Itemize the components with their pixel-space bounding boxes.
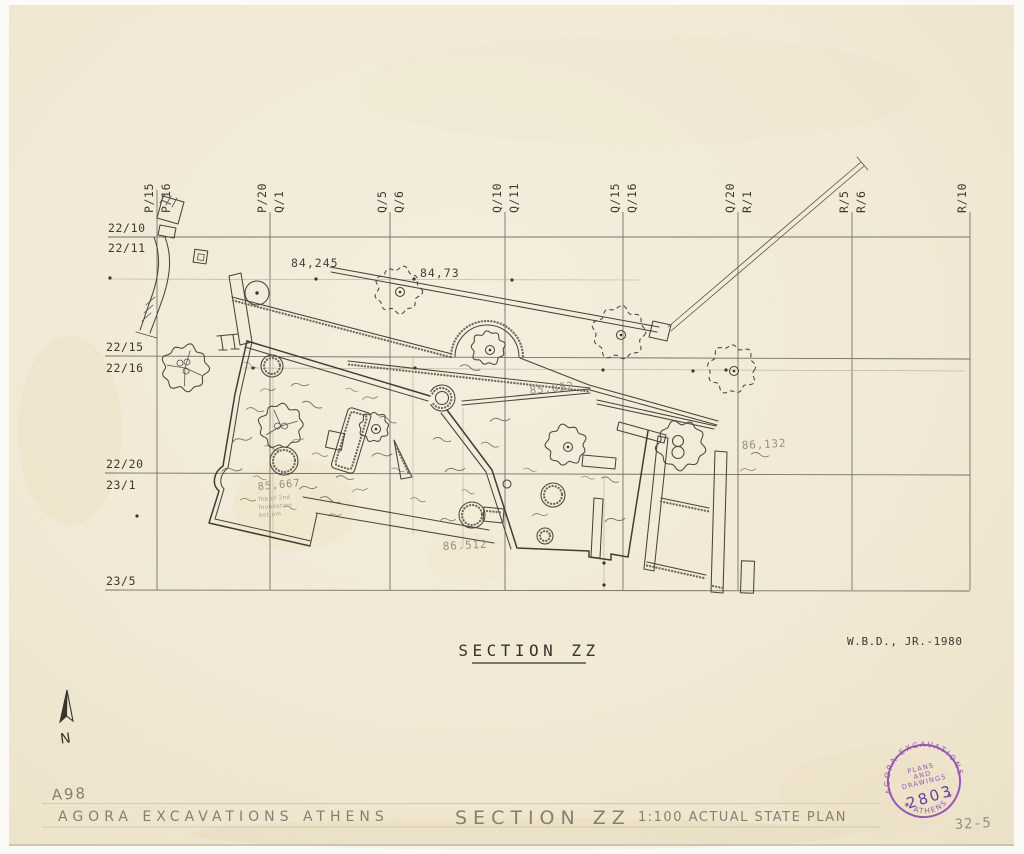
- grid-column-label: Q/20: [723, 183, 737, 213]
- tree-trunk-dot: [567, 446, 570, 449]
- grid-row-label: 22/16: [106, 361, 144, 375]
- north-label: N: [59, 730, 71, 747]
- survey-dot: [135, 514, 138, 517]
- tree-trunk-dot: [375, 428, 378, 431]
- grid-column-label: Q/1: [272, 190, 286, 213]
- survey-dot: [602, 561, 605, 564]
- footer-scale: 1:100 ACTUAL STATE PLAN: [638, 810, 847, 825]
- survey-dot: [412, 277, 415, 280]
- grid-row-label: 22/10: [108, 221, 146, 235]
- scanned-sheet: P/15 P/16 P/20 Q/1 Q/5 Q/6 Q/10 Q/11 Q/1…: [0, 0, 1024, 854]
- grid-column-label: Q/10: [490, 183, 504, 213]
- grid-column-label: Q/5: [375, 190, 389, 213]
- grid-column-label: Q/16: [625, 183, 639, 213]
- tree-branch-line: [184, 368, 185, 386]
- tree-trunk-dot: [733, 370, 736, 373]
- tree-trunk-dot: [620, 334, 623, 337]
- elevation-label: 84,245: [291, 256, 339, 270]
- survey-dot: [108, 276, 111, 279]
- grid-row-label: 22/15: [106, 340, 144, 354]
- grid-column-label: Q/15: [608, 183, 622, 213]
- grid-column-label: R/10: [955, 183, 969, 213]
- grid-column-label: R/6: [854, 190, 868, 213]
- survey-dot: [602, 583, 605, 586]
- survey-dot: [724, 368, 727, 371]
- elevation-label: 84,73: [420, 266, 460, 280]
- survey-dot: [691, 369, 694, 372]
- grid-row-label: 22/20: [106, 457, 144, 471]
- grid-row-label: 22/11: [108, 241, 146, 255]
- sheet-ref: A98: [51, 784, 87, 804]
- grid-column-label: P/20: [255, 183, 269, 213]
- footer-section: SECTION ZZ: [455, 807, 631, 829]
- grid-row-label: 23/5: [106, 574, 136, 588]
- grid-row-label: 23/1: [106, 478, 136, 492]
- survey-dot: [510, 278, 513, 281]
- grid-column-label: R/1: [740, 190, 754, 213]
- tree-trunk-dot: [489, 349, 492, 352]
- drawing-sheet: P/15 P/16 P/20 Q/1 Q/5 Q/6 Q/10 Q/11 Q/1…: [0, 0, 1024, 854]
- grid-column-label: P/15: [142, 183, 156, 213]
- footer-caption: AGORA EXCAVATIONS ATHENS: [58, 809, 389, 825]
- survey-dot: [601, 368, 604, 371]
- tree-trunk-dot: [399, 291, 402, 294]
- plan-title: SECTION ZZ: [458, 641, 599, 660]
- elevation-label-pencil: 86,132: [741, 437, 786, 452]
- draftsman-credit: W.B.D., JR.-1980: [847, 635, 963, 648]
- grid-column-label: Q/11: [507, 183, 521, 213]
- survey-dot: [314, 277, 317, 280]
- page-number: 32-5: [954, 815, 992, 833]
- grid-column-label: Q/6: [392, 190, 406, 213]
- elevation-label-pencil: 86.512: [442, 538, 487, 553]
- grid-column-label: R/5: [837, 190, 851, 213]
